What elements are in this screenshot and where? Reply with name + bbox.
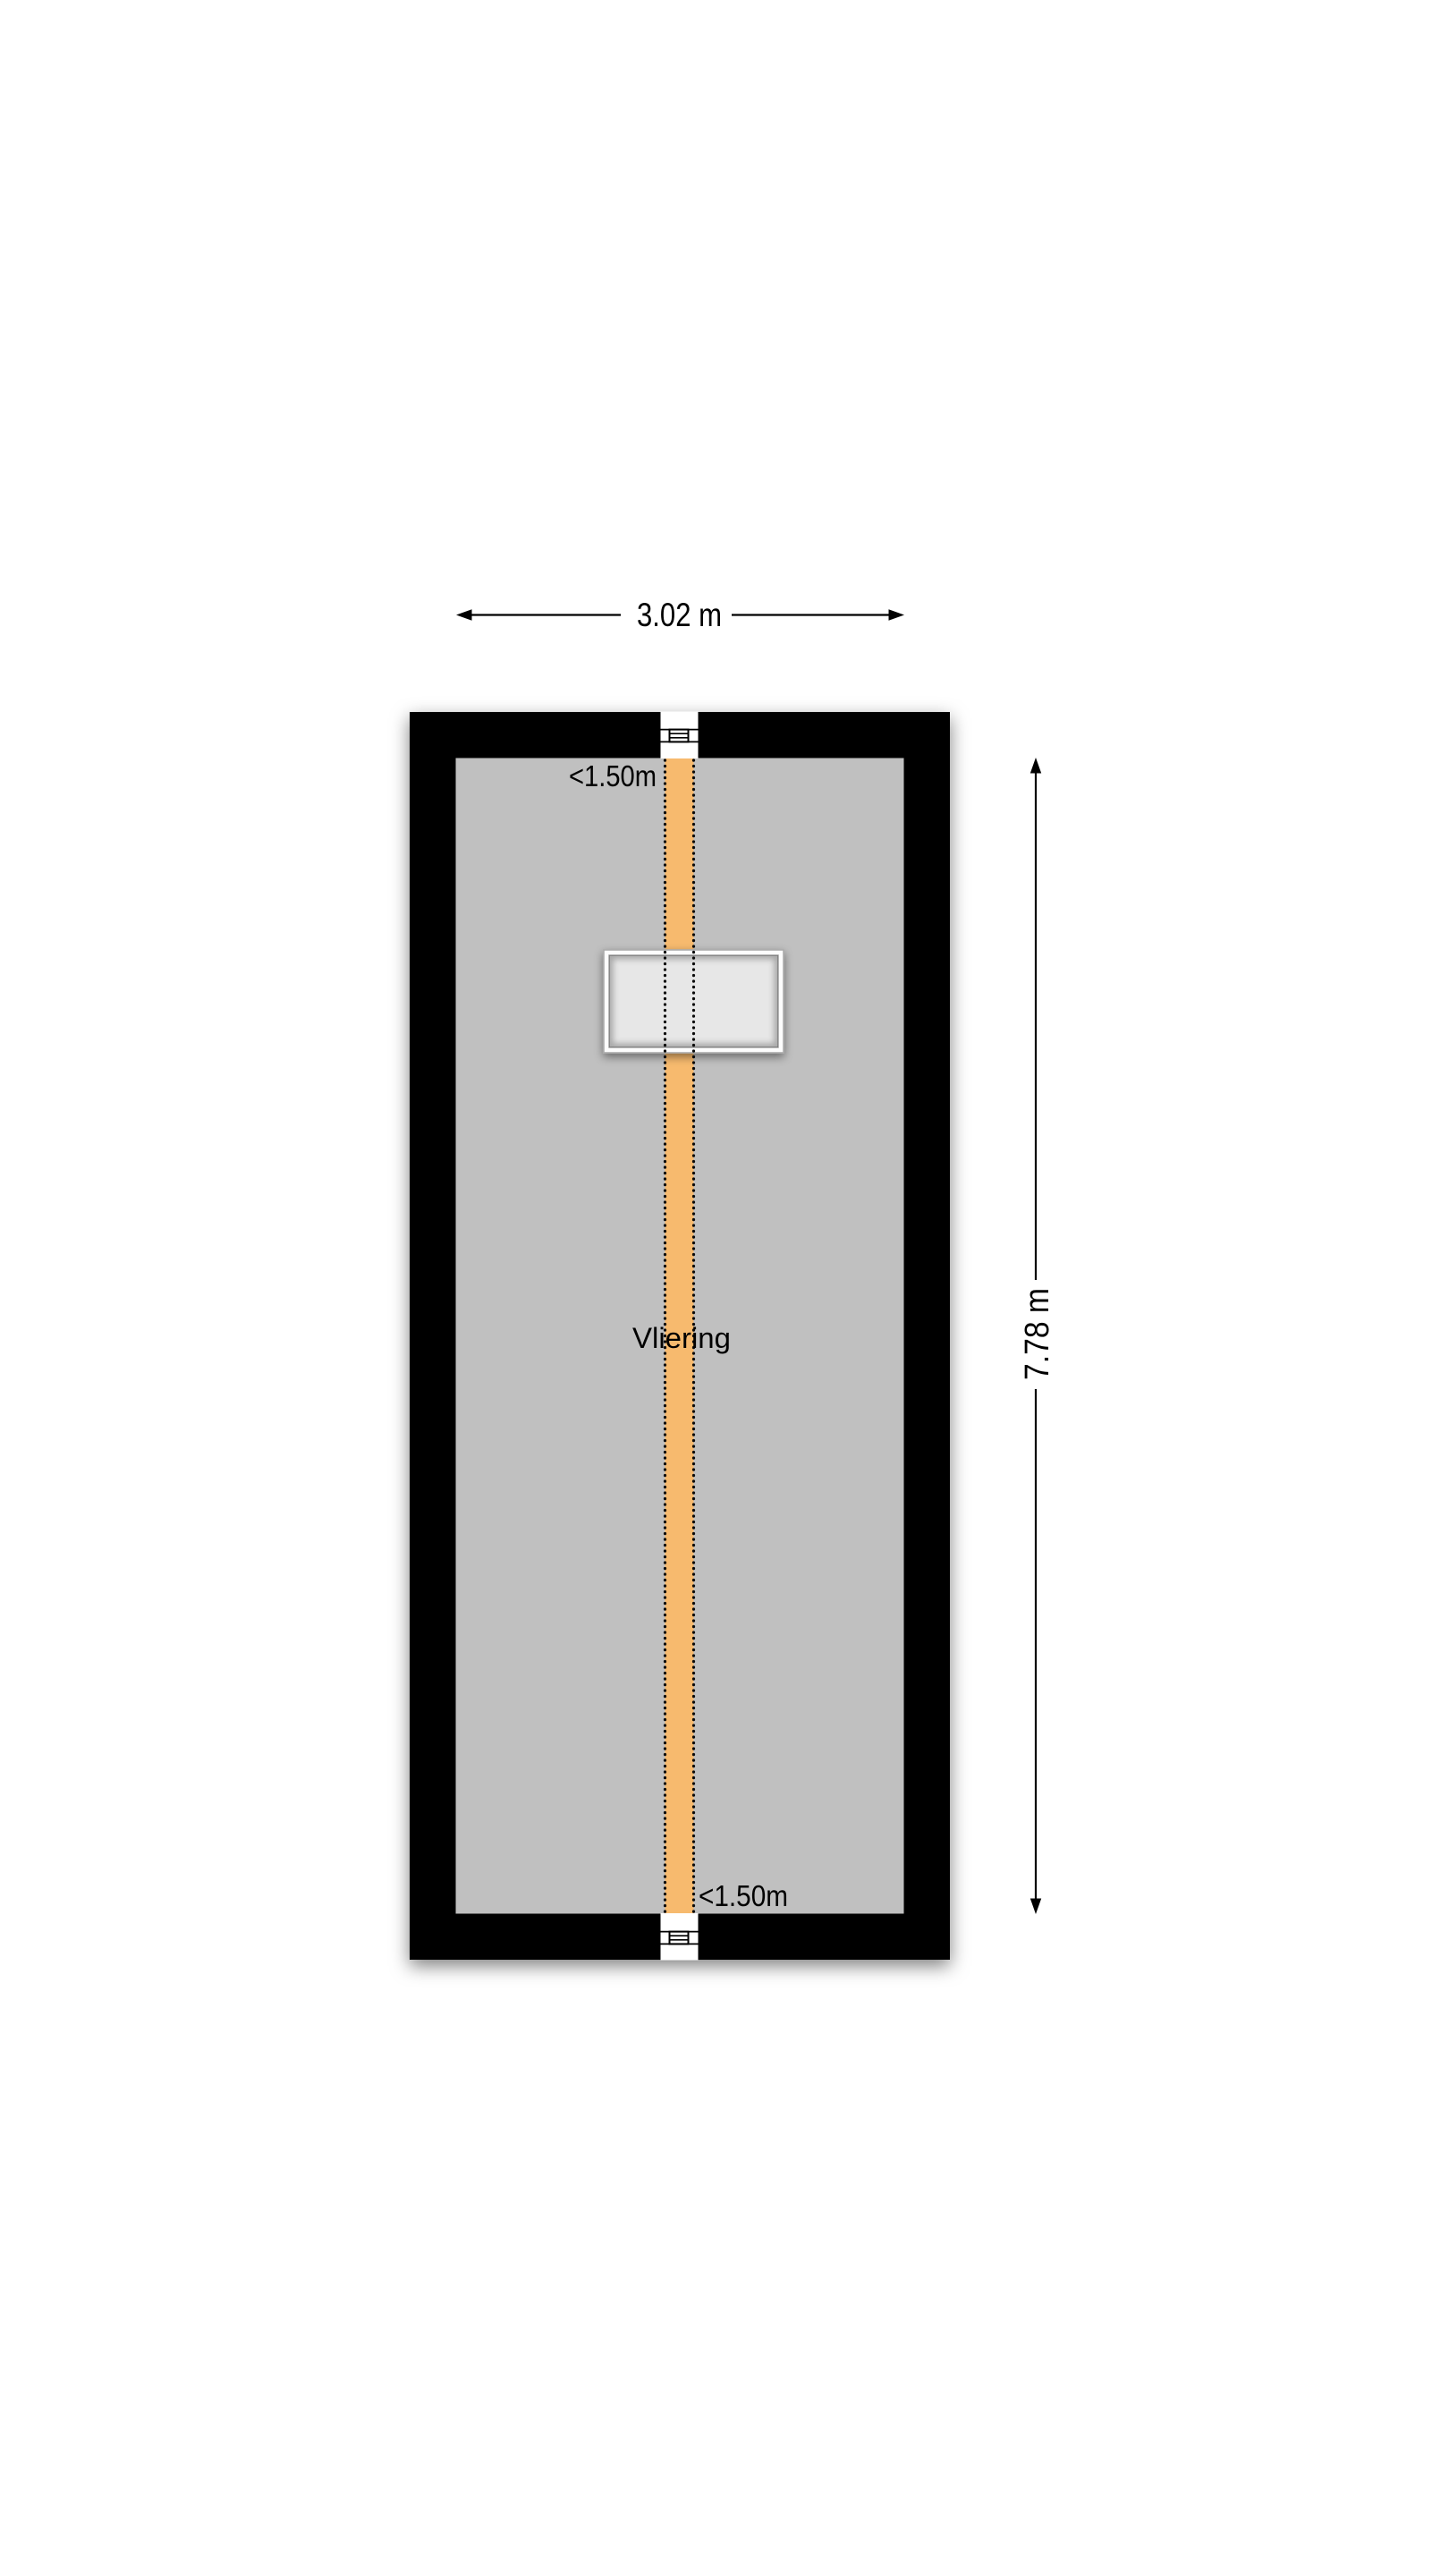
svg-text:<1.50m: <1.50m <box>569 759 657 792</box>
svg-text:3.02 m: 3.02 m <box>637 597 722 633</box>
svg-text:Vliering: Vliering <box>632 1322 731 1354</box>
svg-text:7.78 m: 7.78 m <box>1019 1288 1056 1380</box>
svg-text:<1.50m: <1.50m <box>699 1879 788 1912</box>
